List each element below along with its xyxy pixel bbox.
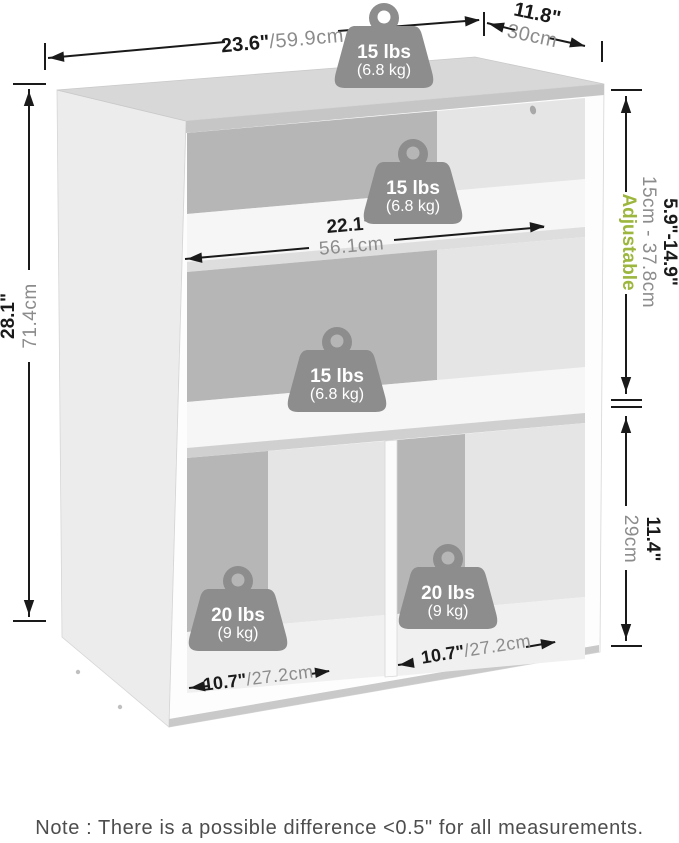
width-cm: /59.9cm: [268, 25, 344, 53]
lower-section-dimension: 11.4" 29cm: [611, 416, 663, 646]
weight-middle-shelf-lbs: 15 lbs: [310, 366, 364, 387]
adjustable-cm: 15cm - 37.8cm: [638, 176, 659, 308]
height-dimension: 28.1" 71.4cm: [0, 84, 46, 621]
width-inches: 23.6": [220, 31, 270, 57]
adjustable-inches: 5.9"-14.9": [659, 198, 679, 286]
weight-badge-top: 15 lbs (6.8 kg): [335, 3, 434, 88]
measurement-note: Note : There is a possible difference <0…: [0, 817, 679, 840]
weight-hook-hole: [442, 552, 455, 565]
width-label: 23.6"/59.9cm: [220, 25, 345, 58]
weight-hook-hole: [378, 11, 391, 24]
weight-right-cubby-kg: (9 kg): [428, 603, 469, 620]
weight-top-kg: (6.8 kg): [357, 62, 411, 79]
weight-hook-hole: [331, 335, 344, 348]
weight-upper-shelf-kg: (6.8 kg): [386, 198, 440, 215]
weight-upper-shelf-lbs: 15 lbs: [386, 178, 440, 199]
weight-left-cubby-kg: (9 kg): [218, 625, 259, 642]
bookshelf-diagram-svg: 23.6"/59.9cm 11.8" 30cm 28.1" 71.4cm 5.9…: [0, 0, 679, 843]
weight-middle-shelf-kg: (6.8 kg): [310, 386, 364, 403]
product-dimension-diagram: 23.6"/59.9cm 11.8" 30cm 28.1" 71.4cm 5.9…: [0, 0, 679, 843]
height-inches: 28.1": [0, 293, 19, 339]
weight-left-cubby-lbs: 20 lbs: [211, 605, 265, 626]
left-side-panel: [57, 90, 186, 727]
lower-cm: 29cm: [620, 515, 641, 563]
weight-top-lbs: 15 lbs: [357, 42, 411, 63]
cam-dot-left-panel-2: [118, 705, 122, 709]
depth-dimension: 11.8" 30cm: [487, 0, 602, 62]
height-cm: 71.4cm: [20, 283, 41, 348]
weight-hook-hole: [407, 147, 420, 160]
adjustable-label: Adjustable: [618, 193, 639, 290]
center-divider: [385, 440, 397, 677]
cam-dot-left-panel-1: [76, 670, 80, 674]
adjustable-range-dimension: 5.9"-14.9" 15cm - 37.8cm Adjustable: [611, 90, 679, 407]
lower-inches: 11.4": [642, 517, 663, 562]
weight-hook-hole: [232, 574, 245, 587]
weight-right-cubby-lbs: 20 lbs: [421, 583, 475, 604]
